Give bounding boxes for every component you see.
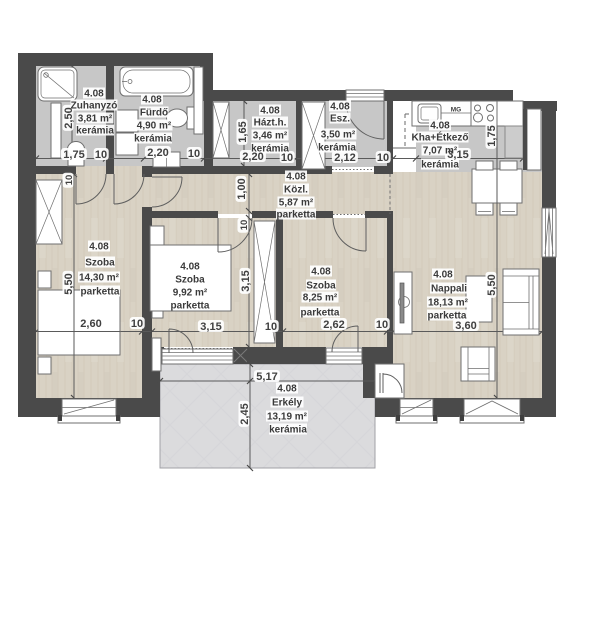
svg-text:parketta: parketta (301, 308, 340, 319)
svg-text:kerámia: kerámia (421, 160, 459, 171)
svg-text:5,50: 5,50 (63, 273, 75, 294)
svg-text:14,30 m²: 14,30 m² (79, 273, 120, 284)
svg-text:10: 10 (281, 152, 293, 164)
svg-text:10: 10 (377, 152, 389, 164)
svg-text:2,50: 2,50 (63, 107, 75, 128)
svg-text:2,45: 2,45 (239, 403, 251, 424)
svg-text:parketta: parketta (277, 210, 316, 221)
svg-text:4.08: 4.08 (433, 270, 453, 281)
svg-text:4.08: 4.08 (286, 172, 306, 183)
svg-text:10: 10 (376, 319, 388, 331)
svg-text:10: 10 (265, 321, 277, 333)
svg-text:Szoba: Szoba (85, 258, 115, 269)
svg-text:3,15: 3,15 (240, 270, 252, 291)
svg-text:Házt.h.: Házt.h. (254, 118, 287, 129)
svg-text:kerámia: kerámia (269, 425, 307, 436)
svg-text:Kha+Étkező: Kha+Étkező (412, 131, 469, 144)
svg-text:4.08: 4.08 (260, 106, 280, 117)
svg-text:4.08: 4.08 (430, 121, 450, 132)
svg-text:2,60: 2,60 (80, 318, 101, 330)
svg-text:2,20: 2,20 (147, 147, 168, 159)
svg-text:13,19 m²: 13,19 m² (267, 412, 308, 423)
svg-text:kerámia: kerámia (76, 126, 114, 137)
svg-text:1,65: 1,65 (237, 121, 249, 142)
svg-text:5,87 m²: 5,87 m² (279, 198, 314, 209)
svg-text:2,62: 2,62 (323, 319, 344, 331)
svg-text:Zuhanyzó: Zuhanyzó (71, 101, 118, 112)
svg-text:3,50 m²: 3,50 m² (321, 130, 356, 141)
svg-text:kerámia: kerámia (134, 134, 172, 145)
svg-text:1,75: 1,75 (486, 125, 498, 146)
svg-text:MG: MG (451, 107, 461, 114)
svg-text:2,20: 2,20 (242, 151, 263, 163)
svg-text:10: 10 (131, 318, 143, 330)
svg-text:Nappali: Nappali (431, 284, 467, 295)
svg-text:1,75: 1,75 (63, 149, 84, 161)
svg-text:10: 10 (188, 148, 200, 160)
svg-text:Közl.: Közl. (284, 185, 308, 196)
svg-text:9,92 m²: 9,92 m² (173, 288, 208, 299)
svg-text:3,60: 3,60 (455, 320, 476, 332)
svg-text:5,17: 5,17 (256, 371, 277, 383)
svg-text:Esz.: Esz. (330, 114, 350, 125)
svg-text:parketta: parketta (81, 287, 120, 298)
svg-text:Erkély: Erkély (272, 398, 302, 409)
svg-text:4.08: 4.08 (180, 262, 200, 273)
svg-text:10: 10 (239, 220, 250, 231)
svg-text:3,46 m²: 3,46 m² (253, 131, 288, 142)
svg-text:4.08: 4.08 (330, 102, 350, 113)
svg-text:10: 10 (95, 149, 107, 161)
svg-text:4.08: 4.08 (311, 267, 331, 278)
svg-text:1,00: 1,00 (236, 178, 248, 199)
svg-text:parketta: parketta (171, 301, 210, 312)
svg-text:4.08: 4.08 (84, 89, 104, 100)
svg-text:Szoba: Szoba (175, 275, 205, 286)
svg-text:4,90 m²: 4,90 m² (137, 121, 172, 132)
svg-text:3,81 m²: 3,81 m² (78, 114, 113, 125)
svg-text:4.08: 4.08 (89, 242, 109, 253)
svg-text:Fürdő: Fürdő (140, 108, 168, 119)
svg-text:4.08: 4.08 (277, 384, 297, 395)
svg-text:10: 10 (64, 175, 75, 186)
svg-text:8,25 m²: 8,25 m² (303, 293, 338, 304)
svg-text:3,15: 3,15 (200, 321, 221, 333)
svg-text:2,12: 2,12 (334, 152, 355, 164)
svg-text:Szoba: Szoba (306, 281, 336, 292)
svg-text:3,15: 3,15 (447, 149, 468, 161)
svg-text:5,50: 5,50 (486, 274, 498, 295)
svg-text:4.08: 4.08 (142, 95, 162, 106)
svg-text:18,13 m²: 18,13 m² (428, 298, 469, 309)
